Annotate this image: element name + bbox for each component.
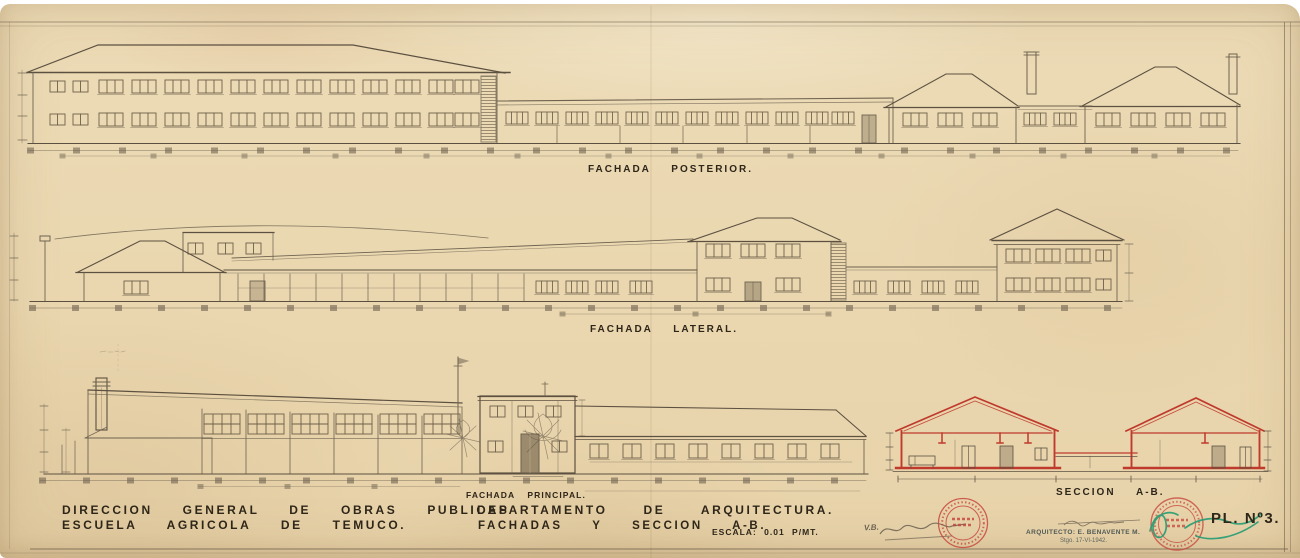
approval-initials: V.B. — [864, 524, 879, 533]
elevation-fachada-posterior — [18, 45, 1240, 156]
ministry-stamp — [1151, 498, 1203, 550]
architectural-line-drawing — [0, 0, 1300, 558]
architect-credit: ARQUITECTO: E. BENAVENTE M. — [1026, 530, 1140, 537]
label-fachada-posterior: FACHADA POSTERIOR. — [588, 165, 753, 175]
sheet-border-lines — [0, 22, 1300, 553]
title-department-line1: DEPARTAMENTO DE ARQUITECTURA. — [477, 504, 834, 516]
label-fachada-principal: FACHADA PRINCIPAL. — [466, 491, 586, 500]
pencil-signature-crossed — [1058, 520, 1140, 526]
section-a-b-drawing — [886, 397, 1271, 482]
blueprint-sheet: FACHADA POSTERIOR. FACHADA LATERAL. FACH… — [0, 0, 1300, 558]
label-seccion-ab: SECCION A-B. — [1056, 488, 1165, 498]
scale-note: ESCALA: 0.01 P/MT. — [712, 528, 819, 537]
title-organization-line2: ESCUELA AGRICOLA DE TEMUCO. — [62, 519, 406, 531]
title-organization-line1: DIRECCION GENERAL DE OBRAS PUBLICAS — [62, 504, 509, 516]
label-fachada-lateral: FACHADA LATERAL. — [590, 325, 738, 335]
plate-number: PL. Nº3. — [1211, 511, 1280, 526]
approval-stamp — [939, 499, 988, 548]
elevation-fachada-principal — [40, 357, 868, 491]
elevation-fachada-lateral — [10, 209, 1133, 372]
architect-date: Stgo. 17-VI-1942. — [1060, 538, 1107, 544]
